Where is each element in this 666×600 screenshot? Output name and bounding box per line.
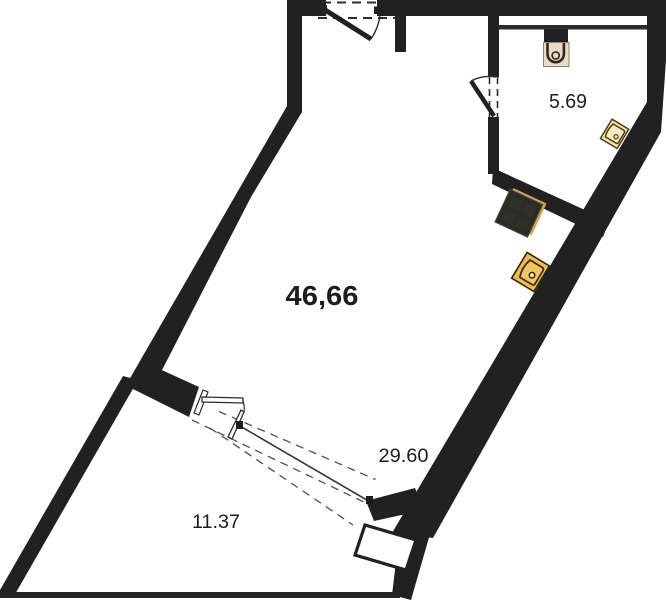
- svg-text:46,66: 46,66: [286, 280, 359, 311]
- svg-text:29.60: 29.60: [379, 446, 429, 467]
- svg-text:11.37: 11.37: [192, 512, 240, 533]
- svg-text:5.69: 5.69: [549, 91, 587, 113]
